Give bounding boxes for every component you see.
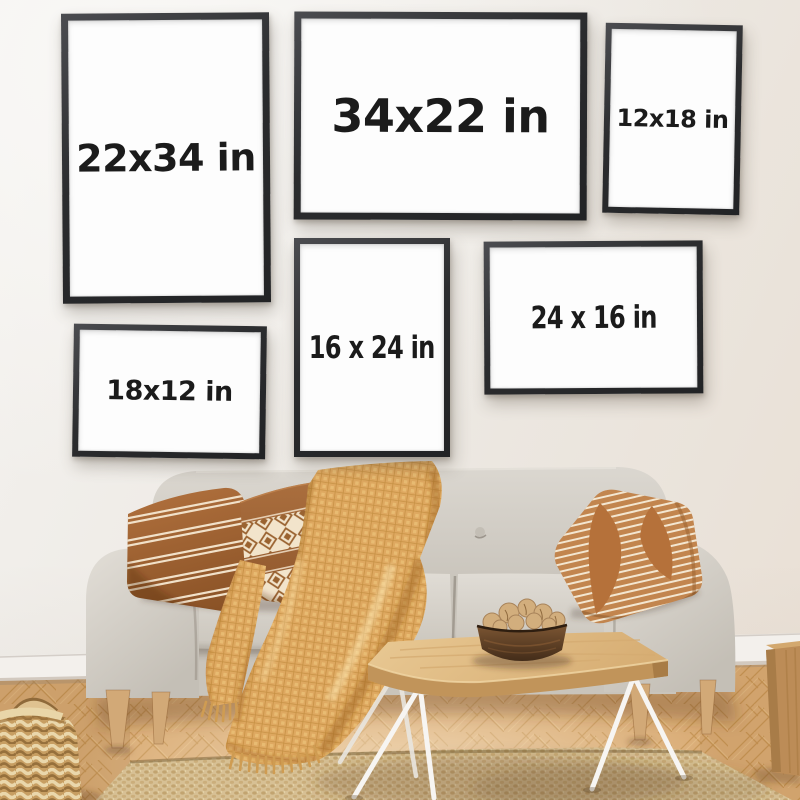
frame-34x22: 34x22 in	[294, 11, 588, 220]
frame-18x12-mat: 18x12 in	[78, 330, 261, 454]
frame-18x12-label: 18x12 in	[106, 375, 233, 408]
frame-24x16-mat: 24 x 16 in	[490, 246, 698, 388]
frame-22x34-mat: 22x34 in	[68, 19, 264, 296]
frame-12x18-label: 12x18 in	[616, 104, 728, 134]
frame-34x22-label: 34x22 in	[331, 89, 549, 144]
frame-16x24-mat: 16 x 24 in	[300, 244, 444, 451]
frame-16x24-label: 16 x 24 in	[309, 330, 435, 366]
frame-24x16: 24 x 16 in	[484, 240, 704, 394]
frame-24x16-label: 24 x 16 in	[530, 299, 656, 336]
frame-34x22-mat: 34x22 in	[301, 19, 581, 214]
frame-12x18-mat: 12x18 in	[608, 29, 736, 209]
room-scene: 22x34 in 34x22 in 12x18 in 16 x 24 in 24…	[0, 0, 800, 800]
frame-12x18: 12x18 in	[602, 23, 743, 216]
frame-22x34-label: 22x34 in	[76, 135, 256, 180]
frame-16x24: 16 x 24 in	[294, 238, 450, 457]
frame-18x12: 18x12 in	[72, 324, 267, 460]
frame-22x34: 22x34 in	[61, 12, 271, 303]
